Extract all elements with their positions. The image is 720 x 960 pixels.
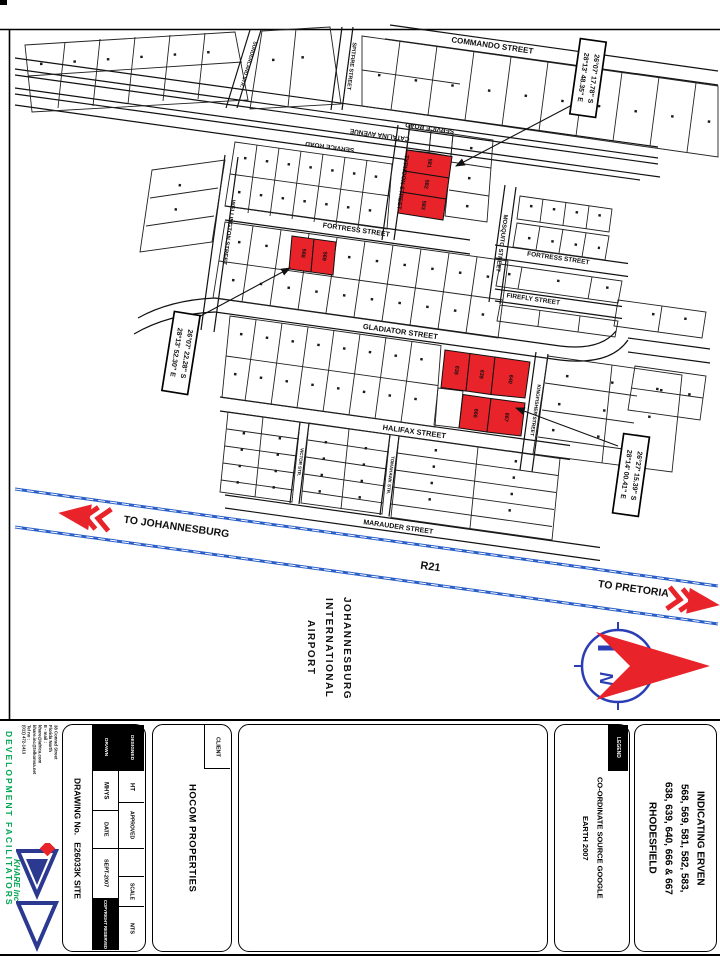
- svg-text:INTERNATIONAL: INTERNATIONAL: [323, 598, 334, 698]
- erf-number: 568: [299, 248, 306, 258]
- drawing-info-panel: DRAWING No. E26033K SITE DRAWN MHYS DATE…: [62, 724, 146, 952]
- erf-number: 581: [425, 158, 432, 168]
- scale-value: NTS: [129, 923, 135, 934]
- sheet-title: INDICATING ERVEN 568, 569, 581, 582, 583…: [644, 782, 708, 895]
- r21-label: R21: [420, 560, 442, 575]
- legend-panel: LEGEND CO-ORDINATE SOURCE GOOGLE EARTH 2…: [554, 724, 630, 952]
- highlighted-erven-cluster-c: [441, 350, 530, 436]
- notes-panel: [238, 724, 548, 952]
- designed-label: DESIGNED: [129, 735, 134, 760]
- erf-number: 638: [452, 365, 459, 375]
- johannesburg-arrow-icon: [56, 500, 111, 533]
- erf-number: 666: [471, 408, 478, 418]
- erf-number: 667: [502, 412, 509, 422]
- highlighted-erven-cluster-b: [289, 236, 336, 275]
- scale-label: SCALE: [129, 883, 135, 900]
- firm-address: 38 Conrad Street Florida North E - mail …: [21, 725, 59, 817]
- khare-logo-icon: [16, 843, 60, 953]
- coordinate-callout-c: 26°27' 15.39" S 28°14' 00.41" E: [613, 434, 650, 517]
- pretoria-arrow-icon: [666, 585, 720, 618]
- north-arrow-red-icon: [596, 632, 710, 700]
- drawing-no-label: DRAWING No.: [73, 778, 83, 835]
- street-label-commando: COMMANDO STREET: [451, 35, 534, 55]
- site-plan-map: 581 582 583 568 569 638 639 640 666 667 …: [0, 0, 720, 719]
- street-label-wellington: WELLINGTON STREET: [220, 199, 235, 265]
- drawing-sheet: 581 582 583 568 569 638 639 640 666 667 …: [0, 0, 720, 960]
- plot-number-marks: [40, 50, 712, 524]
- street-network: [15, 25, 718, 561]
- title-block: DEVELOPMENT FACILITATORS 38 Conrad Stree…: [0, 719, 720, 956]
- legend-text: CO-ORDINATE SOURCE GOOGLE EARTH 2007: [578, 777, 607, 899]
- street-label-spitfire: SPITFIRE STREET: [345, 42, 357, 91]
- drawn-value: MHYS: [103, 782, 109, 799]
- to-pretoria-label: TO PRETORIA: [597, 578, 670, 600]
- street-label-service-road-lower: SERVICE ROAD: [305, 140, 355, 154]
- svg-text:AIRPORT: AIRPORT: [305, 620, 316, 676]
- erf-number: 639: [477, 369, 484, 379]
- erf-number: 582: [422, 179, 429, 189]
- approved-label: APPROVED: [129, 811, 135, 839]
- date-label: DATE: [103, 822, 109, 837]
- drawn-label: DRAWN: [103, 738, 108, 756]
- coordinate-callout-b: 26°07' 22.28" S 28°13' 52.30" E: [162, 311, 200, 394]
- erf-number: 569: [320, 251, 327, 261]
- firm-strip: DEVELOPMENT FACILITATORS 38 Conrad Stree…: [0, 721, 60, 954]
- sheet-title-panel: INDICATING ERVEN 568, 569, 581, 582, 583…: [634, 724, 717, 952]
- street-labels: COMMANDO STREET SERVICE ROAD CATALINA AV…: [220, 35, 589, 536]
- copyright-note: COPYRIGHT RESERVED: [103, 900, 108, 949]
- street-label-catalina: CATALINA AVENUE: [349, 127, 410, 142]
- client-name: HOCOM PROPERTIES: [187, 784, 198, 892]
- airport-label: JOHANNESBURG INTERNATIONAL AIRPORT: [305, 597, 352, 700]
- drawing-no-value: E26033K SITE: [73, 842, 83, 899]
- erf-number: 583: [419, 200, 426, 210]
- client-panel: CLIENT HOCOM PROPERTIES: [152, 724, 232, 952]
- svg-text:JOHANNESBURG: JOHANNESBURG: [341, 597, 352, 700]
- designed-value: HT: [129, 783, 135, 791]
- erf-number: 640: [506, 374, 513, 384]
- firm-tagline: DEVELOPMENT FACILITATORS: [1, 731, 14, 953]
- north-compass: N: [574, 622, 710, 710]
- date-value: SEPT-2007: [103, 859, 109, 887]
